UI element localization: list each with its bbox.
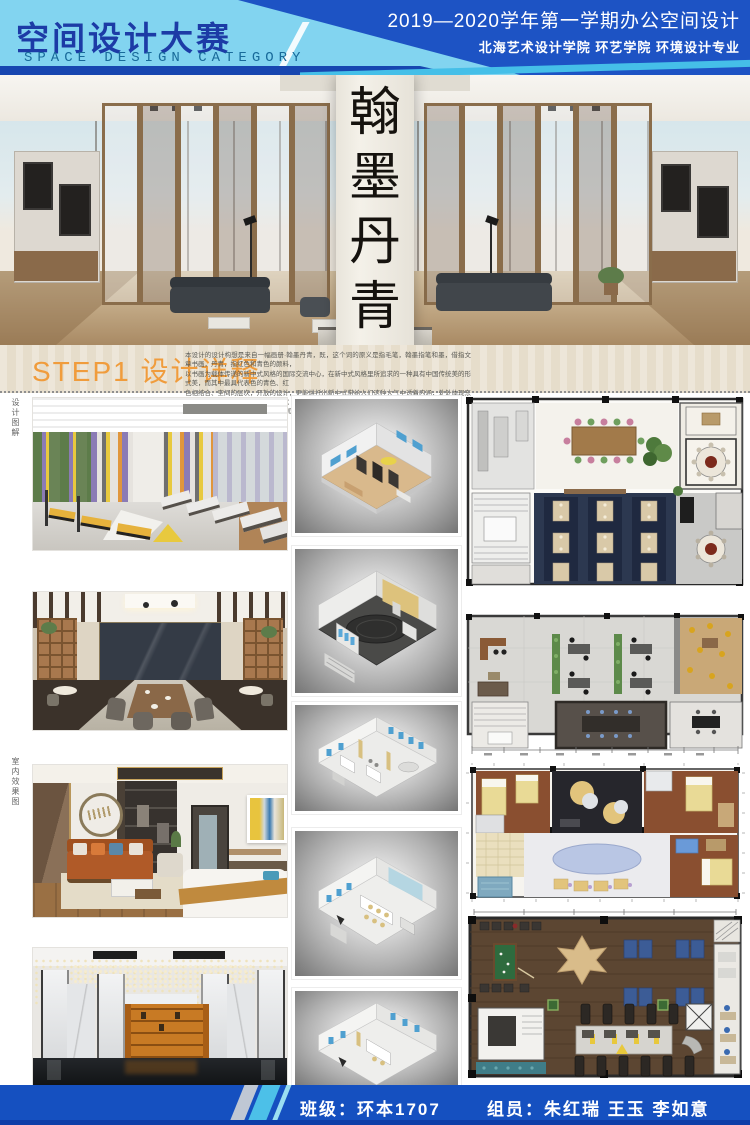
ink-artwork: [697, 186, 729, 238]
fan-decor: [87, 806, 113, 821]
wardrobe-clothes: [157, 823, 169, 843]
axon-svg-1: [295, 399, 458, 533]
axon-frame-5: [292, 988, 461, 1091]
glass-partition: [102, 103, 140, 305]
axon-stage-hall: [295, 549, 458, 693]
dining-chair: [171, 712, 191, 730]
gym-plant-wall: [33, 432, 91, 504]
photo-bedroom-rendering: [33, 765, 287, 917]
plate: [145, 690, 150, 694]
floor-reflection: [261, 1060, 275, 1080]
photo-restaurant-rendering: [33, 592, 287, 730]
marble-column: [41, 970, 69, 1062]
side-label-design-diagram: 设计图解: [10, 398, 21, 438]
plan-office-level: [464, 598, 746, 758]
rest-marble-wall: [99, 622, 223, 682]
cabinet-left: [14, 251, 98, 281]
dining-chair: [47, 694, 59, 706]
cushion: [91, 843, 105, 855]
pendant-lamp-icon: [171, 600, 178, 607]
round-wall-art: [79, 793, 123, 837]
dining-chair: [133, 712, 153, 730]
plate: [151, 704, 158, 709]
sofa-right: [436, 283, 552, 311]
footer-class-label: 班级：环本1707: [300, 1095, 441, 1120]
console-table: [229, 849, 281, 855]
poster-title-en: SPACE DESIGN CATEGORY: [24, 50, 305, 66]
paragraph-line: 本设计的设计构想是来自一幅画册·翰墨丹青，既，这个词的原义是指毛笔，翰墨指笔和墨…: [185, 351, 471, 370]
rest-wall-panel: [221, 622, 243, 680]
armchair: [157, 853, 183, 877]
cabinet-item: [159, 1024, 164, 1031]
plate: [165, 696, 171, 700]
coffee-table: [208, 317, 250, 329]
plan3-svg: [464, 763, 746, 905]
barbell-rack: [77, 496, 80, 532]
cushion: [109, 843, 123, 855]
header-banner: 空间设计大赛 SPACE DESIGN CATEGORY 2019—2020学年…: [0, 0, 750, 75]
ink-artwork: [59, 184, 91, 236]
plant-icon: [171, 831, 181, 847]
sheer-partition: [140, 103, 178, 305]
door-frosted-panel: [199, 815, 217, 871]
blue-pillow: [263, 871, 279, 880]
plant-icon: [261, 626, 277, 638]
tea-table: [135, 889, 161, 899]
step1-band: STEP1 设计详释 本设计的设计构想是来自一幅画册·翰墨丹青，既，这个词的原义…: [0, 345, 750, 393]
floor-reflection: [47, 1060, 61, 1080]
side-label-interior-renders: 室内效果图: [10, 757, 21, 807]
footer-members-label: 组员：朱红瑞 王玉 李如意: [487, 1095, 709, 1120]
plant-icon: [41, 622, 57, 634]
footer-banner: 班级：环本1707 组员：朱红瑞 王玉 李如意: [0, 1085, 750, 1125]
plan-guestroom-level: [464, 763, 746, 905]
cushion: [73, 843, 87, 855]
glass-partition: [254, 103, 292, 305]
rest-cove-light: [125, 594, 195, 608]
rest-wall-panel: [77, 622, 99, 680]
header-session-line: 2019—2020学年第一学期办公空间设计: [387, 6, 740, 33]
axon-frame-1: [292, 396, 461, 536]
header-school-line: 北海艺术设计学院 环艺学院 环境设计专业: [387, 37, 740, 56]
gym-mirror-wall: [213, 432, 287, 504]
photo-lobby-rendering: [33, 948, 287, 1085]
pendant-lamp-icon: [143, 602, 149, 608]
ink-artwork: [23, 162, 53, 210]
axon-frame-2: [292, 546, 461, 696]
floor-spotlight-pole: [250, 223, 252, 285]
axon-frame-3: [292, 702, 461, 814]
plan-restaurant-level: [464, 393, 746, 590]
sheer-partition: [292, 103, 330, 305]
sofa-left: [170, 287, 270, 313]
axon-meeting-floor: [295, 831, 458, 976]
marble-column: [97, 974, 125, 1062]
plan-gym-level: [464, 908, 746, 1083]
axon-svg-2: [295, 549, 458, 693]
axon-svg-4: [295, 831, 458, 976]
design-competition-poster: 空间设计大赛 SPACE DESIGN CATEGORY 2019—2020学年…: [0, 0, 750, 1125]
axon-svg-3: [295, 705, 458, 811]
gym-marble-panel: [133, 432, 163, 504]
calligraphy-scroll: 翰 墨 丹 青: [336, 75, 414, 345]
wardrobe-clothes: [137, 805, 149, 827]
cushion: [129, 843, 143, 855]
marble-panel: [67, 984, 95, 1058]
calligraphy-char: 丹: [349, 216, 401, 268]
plan4-svg: [464, 908, 746, 1083]
footer-bottom-strip: [0, 1120, 750, 1125]
bed-ceiling-recess: [117, 767, 223, 780]
side-table: [239, 686, 263, 695]
barbell-rack: [45, 490, 48, 526]
paragraph-line: 以书画为载体传递的新中式风格的国际交流中心，在新中式风格里所追求的一种具有中国传…: [185, 370, 471, 389]
dining-chair: [194, 697, 215, 721]
floor-reflection-orange: [125, 1060, 197, 1074]
ink-artwork: [661, 164, 691, 212]
axon-frame-4: [292, 828, 461, 979]
plant-pot: [604, 283, 618, 295]
axon-extra-floor: [295, 991, 458, 1088]
cabinet-right: [652, 251, 736, 281]
cabinet-item: [175, 1012, 180, 1019]
orange-display-cabinet: [125, 1004, 209, 1058]
calligraphy-char: 青: [349, 281, 401, 333]
glass-partition: [178, 103, 216, 305]
axon-library-office: [295, 399, 458, 533]
armchair: [300, 297, 330, 317]
abstract-painting: [247, 795, 287, 843]
axon-office-floor: [295, 705, 458, 811]
gym-ceiling-recess: [183, 404, 267, 414]
dining-chair: [261, 694, 273, 706]
marble-panel: [227, 984, 255, 1058]
dining-chair: [106, 697, 127, 721]
marble-column: [257, 970, 285, 1062]
sheer-partition: [216, 103, 254, 305]
calligraphy-char: 墨: [349, 152, 401, 204]
cabinet-item: [141, 1012, 146, 1019]
axon-svg-5: [295, 991, 458, 1088]
calligraphy-char: 翰: [349, 87, 401, 139]
plan2-svg: [464, 598, 746, 758]
header-right-block: 2019—2020学年第一学期办公空间设计 北海艺术设计学院 环艺学院 环境设计…: [387, 6, 740, 56]
plan1-svg: [464, 393, 746, 590]
photo-gym-rendering: [33, 398, 287, 550]
hero-lobby-rendering: 翰 墨 丹 青: [0, 75, 750, 345]
